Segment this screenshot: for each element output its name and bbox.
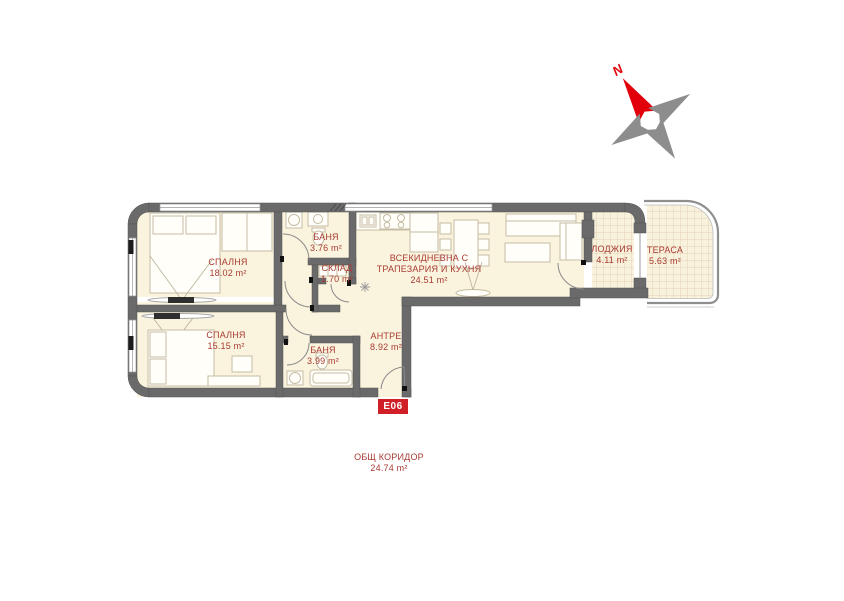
room-name: ЛОДЖИЯ [591, 244, 632, 255]
room-name: ТЕРАСА [647, 245, 683, 256]
wall-bath2-top [310, 336, 360, 343]
room-label-terrace: ТЕРАСА 5.63 m² [647, 245, 683, 267]
wall-loggia-bottom [570, 288, 648, 298]
sink-icon [286, 212, 302, 228]
compass-west-arm [605, 113, 651, 154]
sink-icon [287, 371, 303, 385]
room-label-loggia: ЛОДЖИЯ 4.11 m² [591, 244, 632, 266]
room-name: БАНЯ [307, 345, 339, 356]
room-name: АНТРЕ [370, 331, 402, 342]
unit-badge: E06 [378, 399, 408, 414]
compass-north-arm [614, 72, 658, 123]
room-name: ОБЩ КОРИДОР [354, 452, 424, 463]
bed-icon [148, 330, 214, 386]
bathtub-icon [310, 370, 352, 386]
wall-bedroom2-right [276, 312, 283, 397]
room-area: 3.76 m² [310, 243, 342, 254]
loggia-post-top [634, 223, 646, 233]
ac-unit-icon [360, 282, 370, 292]
wardrobe-icon [222, 213, 272, 251]
room-label-entry: АНТРЕ 8.92 m² [370, 331, 402, 353]
room-area: 5.63 m² [647, 256, 683, 267]
room-label-common-corridor: ОБЩ КОРИДОР 24.74 m² [354, 452, 424, 474]
room-label-living: ВСЕКИДНЕВНА С ТРАПЕЗАРИЯ И КУХНЯ 24.51 m… [371, 253, 487, 286]
loggia-post-bottom [634, 278, 646, 288]
floor-plan-drawing [120, 190, 720, 430]
wall-bottom [149, 388, 378, 397]
room-area: 15.15 m² [206, 341, 245, 352]
compass-south-arm [643, 118, 684, 164]
room-label-bathroom-2: БАНЯ 3.99 m² [307, 345, 339, 367]
tv-unit-icon [560, 223, 582, 260]
wall-storage-left [312, 265, 318, 312]
compass-north-label: N [610, 61, 627, 79]
room-area: 18.02 m² [208, 268, 247, 279]
room-name: СПАЛНЯ [208, 257, 247, 268]
bed-icon [150, 213, 220, 293]
room-name: СПАЛНЯ [206, 330, 245, 341]
window [160, 204, 260, 211]
washing-machine-icon [308, 212, 328, 226]
compass-east-arm [648, 85, 696, 127]
floor-plan-page: N [0, 0, 844, 601]
room-area: 24.74 m² [354, 463, 424, 474]
room-label-storage: СКЛАД 1.70 m² [321, 263, 353, 285]
room-area: 1.70 m² [321, 274, 353, 285]
room-label-bedroom-2: СПАЛНЯ 15.15 m² [206, 330, 245, 352]
wall-entry-right [402, 297, 411, 397]
room-label-bedroom-1: СПАЛНЯ 18.02 m² [208, 257, 247, 279]
wall-living-bottom [402, 297, 580, 306]
compass-rose: N [588, 52, 712, 168]
wall-bedroom-divider [137, 305, 286, 312]
room-name: СКЛАД [321, 263, 353, 274]
wall-bath2-right [353, 336, 360, 397]
room-name: ВСЕКИДНЕВНА С ТРАПЕЗАРИЯ И КУХНЯ [371, 253, 487, 275]
window [345, 204, 492, 211]
room-label-bathroom-1: БАНЯ 3.76 m² [310, 232, 342, 254]
room-area: 24.51 m² [371, 275, 487, 286]
room-area: 4.11 m² [591, 255, 632, 266]
room-area: 8.92 m² [370, 342, 402, 353]
side-table-icon [232, 356, 252, 372]
room-name: БАНЯ [310, 232, 342, 243]
room-area: 3.99 m² [307, 356, 339, 367]
cabinet-icon [208, 376, 260, 386]
